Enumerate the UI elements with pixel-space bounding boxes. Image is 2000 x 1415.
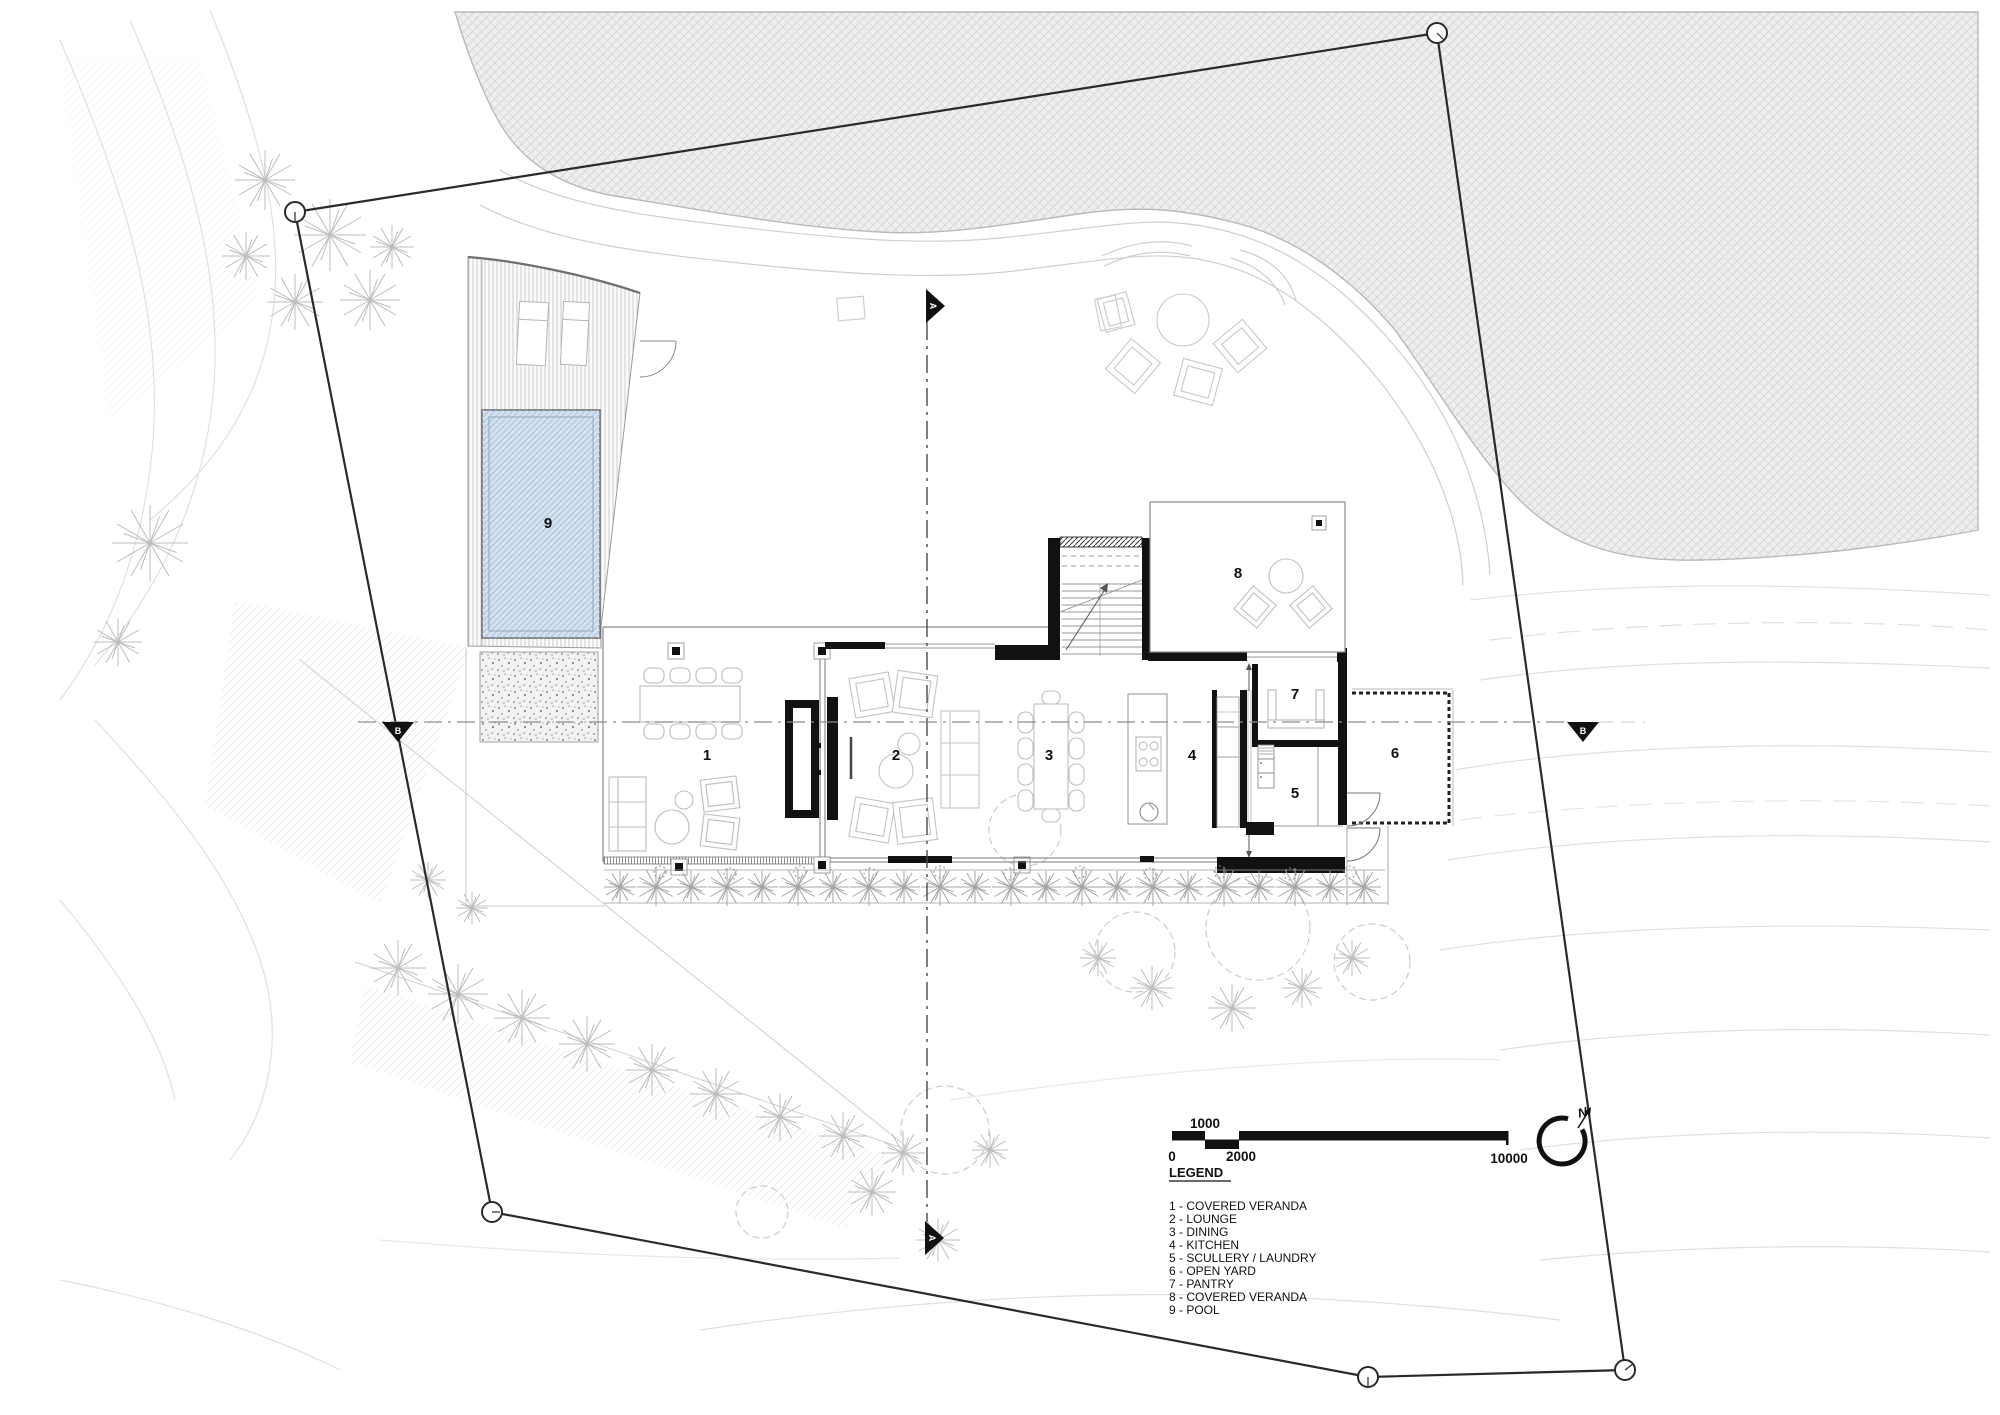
legend-item-5: 5 - SCULLERY / LAUNDRY <box>1169 1251 1316 1265</box>
section-letter: B <box>395 726 402 736</box>
room-label-5: 5 <box>1291 785 1299 802</box>
room-label-8: 8 <box>1234 565 1242 582</box>
pool <box>482 410 600 638</box>
site-plan-drawing: A A B B 1 2 3 4 5 6 7 8 9 1000 0 <box>0 0 2000 1415</box>
site-plan-sheet: A A B B 1 2 3 4 5 6 7 8 9 1000 0 <box>0 0 2000 1415</box>
legend-item-3: 3 - DINING <box>1169 1225 1228 1239</box>
section-letter: A <box>927 1235 937 1242</box>
room-label-2: 2 <box>892 747 900 764</box>
legend-item-9: 9 - POOL <box>1169 1303 1220 1317</box>
legend-item-4: 4 - KITCHEN <box>1169 1238 1239 1252</box>
veranda-8 <box>1150 502 1345 652</box>
room-label-1: 1 <box>703 747 711 764</box>
legend-item-7: 7 - PANTRY <box>1169 1277 1234 1291</box>
scale-mid-label: 2000 <box>1226 1149 1256 1164</box>
legend-heading: LEGEND <box>1169 1165 1223 1180</box>
scale-end-label: 10000 <box>1490 1151 1528 1166</box>
scale-upper-label: 1000 <box>1190 1116 1220 1131</box>
east-wall <box>1338 662 1347 825</box>
section-letter: B <box>1580 726 1587 736</box>
room-label-6: 6 <box>1391 745 1399 762</box>
room-label-3: 3 <box>1045 747 1053 764</box>
room-label-7: 7 <box>1291 686 1299 703</box>
legend-item-8: 8 - COVERED VERANDA <box>1169 1290 1307 1304</box>
legend-item-6: 6 - OPEN YARD <box>1169 1264 1256 1278</box>
room-label-4: 4 <box>1188 747 1197 764</box>
scale-zero-label: 0 <box>1168 1149 1176 1164</box>
room-label-9: 9 <box>544 515 552 532</box>
section-letter: A <box>928 303 938 310</box>
legend-item-1: 1 - COVERED VERANDA <box>1169 1199 1307 1213</box>
legend-item-2: 2 - LOUNGE <box>1169 1212 1237 1226</box>
